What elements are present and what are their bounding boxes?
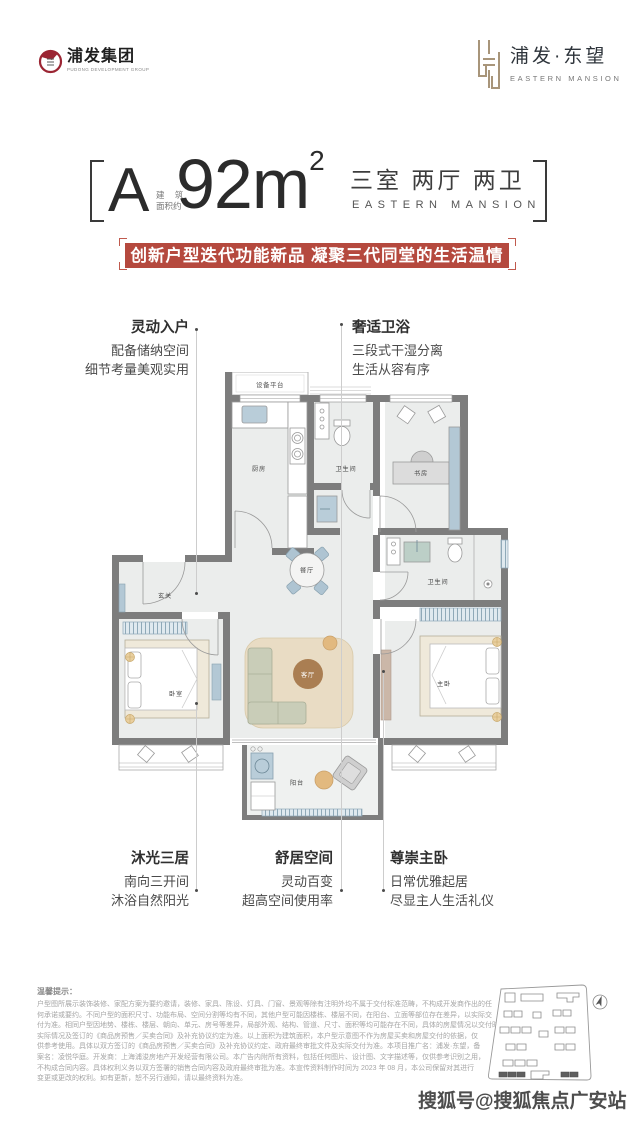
callout-entry: 灵动入户 配备储纳空间 细节考量美观实用 [57,316,189,379]
guide-line-master [383,671,384,891]
study-label: 书房 [414,470,428,478]
poster: 浦发集团 PUDONG DEVELOPMENT GROUP 浦发·东望 EAST… [0,0,635,1125]
site-plan-map [487,983,609,1093]
guide-line-bath-space [341,325,342,891]
area-value: 92m2 [176,144,325,224]
equipment-platform: 设备平台 [232,372,371,395]
callout-entry-title: 灵动入户 [57,316,189,337]
brand-logo-name: 浦发·东望 [510,46,622,68]
guide-line-sunlight [196,703,197,891]
brand-logo: 浦发·东望 EASTERN MANSION [476,38,622,90]
equipment-label: 设备平台 [256,380,284,389]
callout-space: 舒居空间 灵动百变 超高空间使用率 [201,847,333,910]
balcony-label: 阳台 [290,779,304,787]
floorplan: 设备平台 [112,372,530,824]
foyer-furniture [119,584,125,612]
group-logo-subtitle: PUDONG DEVELOPMENT GROUP [67,67,149,72]
brand-logo-subtitle: EASTERN MANSION [510,74,622,83]
callout-space-title: 舒居空间 [201,847,333,868]
callout-master: 尊崇主卧 日常优雅起居 尽显主人生活礼仪 [390,847,550,910]
banner-corner-tr [508,238,516,246]
brand-logo-icon [476,38,502,90]
disclaimer-title: 温馨提示： [37,986,485,997]
area-superscript: 2 [309,145,325,176]
kitchen-label: 厨房 [252,465,266,473]
slogan-banner: 创新户型迭代功能新品 凝聚三代同堂的生活温情 [125,243,509,268]
bath2-label: 卫生间 [428,578,449,586]
dining-label: 餐厅 [300,567,314,575]
title-bracket-left [90,160,104,222]
callout-sunlight-title: 沐光三居 [57,847,189,868]
callout-bath: 奢适卫浴 三段式干湿分离 生活从容有序 [352,316,512,379]
unit-letter: A [108,155,149,226]
disclaimer: 温馨提示： 户型图所展示装饰装修、家配方案为要约邀请，装修、家具、陈设、灯具、门… [37,986,485,1085]
group-logo-icon [38,48,63,74]
banner-corner-tl [119,238,127,246]
master-label: 主卧 [437,680,451,688]
bath1-label: 卫生间 [336,465,357,473]
banner-corner-bl [119,262,127,270]
callout-bath-title: 奢适卫浴 [352,316,512,337]
compass-icon [593,995,607,1009]
guide-line-entry [196,330,197,594]
foyer-label: 玄关 [158,592,172,600]
living-label: 客厅 [301,671,315,679]
callout-master-title: 尊崇主卧 [390,847,550,868]
banner-corner-br [508,262,516,270]
group-logo-name: 浦发集团 [67,48,149,66]
bedroom-label: 卧室 [169,690,183,698]
rooms-summary-en: EASTERN MANSION [352,199,541,211]
rooms-summary: 三室 两厅 两卫 [350,161,525,195]
title-bracket-right [533,160,547,222]
group-logo: 浦发集团 PUDONG DEVELOPMENT GROUP [38,48,149,74]
watermark: 搜狐号@搜狐焦点广安站 [418,1086,632,1113]
callout-sunlight: 沐光三居 南向三开间 沐浴自然阳光 [57,847,189,910]
